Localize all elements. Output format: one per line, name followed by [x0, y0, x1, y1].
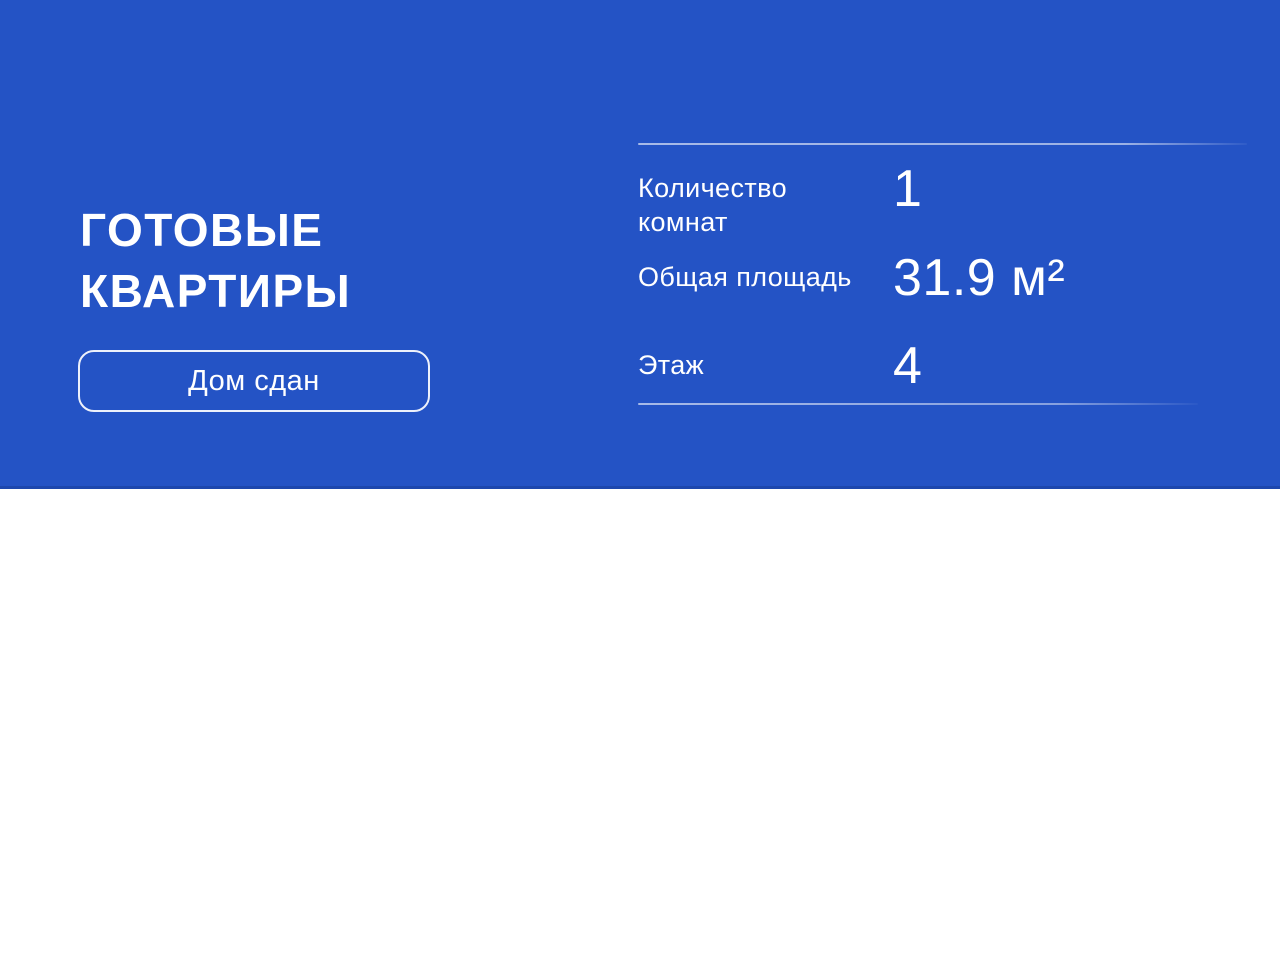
rooms-count-label: Количество комнат — [638, 161, 853, 239]
total-area-label: Общая площадь — [638, 250, 853, 294]
apartment-details: Количество комнат 1 Общая площадь 31.9 м… — [638, 0, 1250, 489]
floor-label: Этаж — [638, 338, 853, 382]
banner: ГОТОВЫЕКВАРТИРЫ Дом сдан Количество комн… — [0, 0, 1280, 489]
divider-bottom — [638, 403, 1198, 405]
divider-top — [638, 143, 1247, 145]
banner-title-line2: КВАРТИРЫ — [80, 265, 351, 317]
banner-title-line1: ГОТОВЫЕ — [80, 204, 323, 256]
house-delivered-badge[interactable]: Дом сдан — [78, 350, 430, 412]
banner-title: ГОТОВЫЕКВАРТИРЫ — [80, 200, 351, 322]
total-area-value: 31.9 м² — [893, 250, 1065, 306]
floor-plan-section: 51 4 15.4 1 2.5 2 3.1 3 — [0, 489, 1280, 960]
badge-label: Дом сдан — [188, 365, 320, 398]
floor-value: 4 — [893, 338, 922, 394]
page: ГОТОВЫЕКВАРТИРЫ Дом сдан Количество комн… — [0, 0, 1280, 960]
rooms-count-value: 1 — [893, 161, 922, 217]
